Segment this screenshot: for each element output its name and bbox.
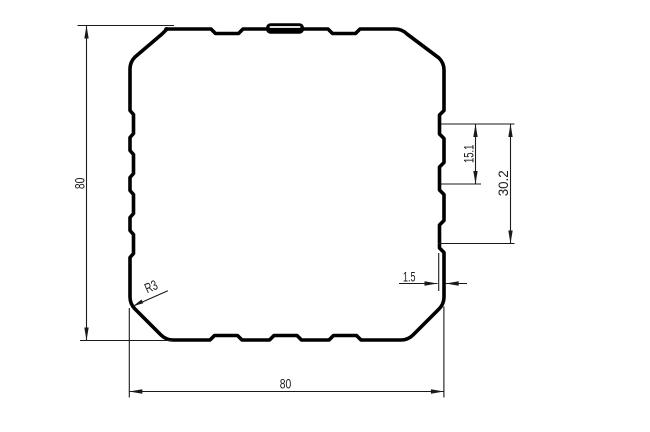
svg-text:80: 80 — [280, 375, 292, 391]
svg-text:15.1: 15.1 — [461, 144, 477, 163]
svg-text:80: 80 — [71, 177, 87, 189]
svg-text:1.5: 1.5 — [403, 269, 416, 285]
svg-text:30.2: 30.2 — [495, 170, 511, 196]
